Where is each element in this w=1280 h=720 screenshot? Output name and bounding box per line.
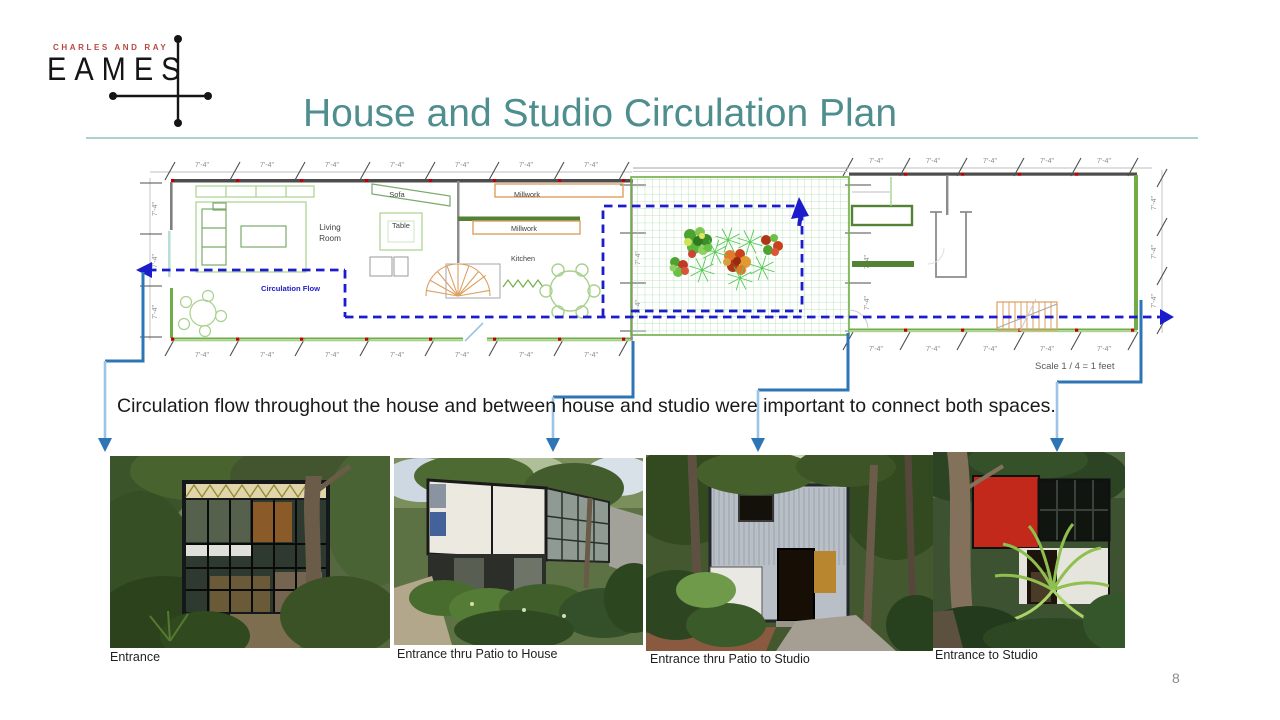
dimension-tick xyxy=(489,162,499,180)
dimension-tick xyxy=(230,162,240,180)
dimension-label: 7'-4" xyxy=(1097,346,1111,353)
dimension-label: 7'-4" xyxy=(1040,346,1054,353)
dimension-label: 7'-4" xyxy=(983,346,997,353)
dimension-label: 7'-4" xyxy=(195,162,209,169)
dimension-tick xyxy=(165,162,175,180)
living-room-label: Living xyxy=(319,223,341,232)
photo-entrance-thru-patio-to-house-image xyxy=(394,458,643,645)
door-swing xyxy=(849,310,868,329)
dimension-label: 7'-4" xyxy=(864,296,871,310)
studio-stair xyxy=(997,299,1057,331)
eames-cross-icon xyxy=(100,30,230,135)
cabinet-outline xyxy=(370,257,392,276)
dimension-label: 7'-4" xyxy=(325,162,339,169)
dimension-label: 7'-4" xyxy=(1097,158,1111,165)
living-room-label: Room xyxy=(319,234,341,243)
page-title: House and Studio Circulation Plan xyxy=(303,92,897,136)
dimension-tick xyxy=(554,162,564,180)
dimension-label: 7'-4" xyxy=(926,158,940,165)
dimension-label: 7'-4" xyxy=(152,202,159,216)
dimension-label: 7'-4" xyxy=(260,162,274,169)
dimension-tick xyxy=(957,332,967,350)
dimension-tick xyxy=(360,162,370,180)
dimension-tick xyxy=(425,162,435,180)
photo-caption-entrance: Entrance xyxy=(110,650,160,664)
studio-table xyxy=(930,212,972,277)
dimension-label: 7'-4" xyxy=(260,352,274,359)
studio-counter xyxy=(852,206,912,225)
dimension-tick xyxy=(619,162,629,180)
studio-counter xyxy=(852,261,914,267)
photo-entrance-thru-patio-to-studio-image xyxy=(646,455,933,651)
living-room-furniture xyxy=(179,186,315,337)
dimension-tick xyxy=(1014,332,1024,350)
photo-entrance-to-studio-image xyxy=(933,452,1125,648)
photo-entrance-thru-patio-to-house xyxy=(394,458,643,650)
cabinet-outline xyxy=(394,257,408,276)
dimension-label: 7'-4" xyxy=(1151,245,1158,259)
dimension-label: 7'-4" xyxy=(152,254,159,268)
dining-table xyxy=(540,264,600,318)
dimension-tick xyxy=(295,162,305,180)
dimension-label: 7'-4" xyxy=(390,352,404,359)
dimension-label: 7'-4" xyxy=(584,162,598,169)
kitchen-label: Kitchen xyxy=(511,254,535,263)
dimension-label: 7'-4" xyxy=(519,352,533,359)
page-number: 8 xyxy=(1172,670,1180,686)
photo-caption-entrance-to-studio: Entrance to Studio xyxy=(935,648,1038,662)
body-text: Circulation flow throughout the house an… xyxy=(117,395,1177,418)
sofa-label: Sofa xyxy=(389,190,405,199)
title-divider xyxy=(86,137,1198,139)
dimension-label: 7'-4" xyxy=(325,352,339,359)
dimension-tick xyxy=(1071,332,1081,350)
table-label: Table xyxy=(392,221,410,230)
photo-entrance-thru-patio-to-studio xyxy=(646,455,933,656)
dimension-label: 7'-4" xyxy=(195,352,209,359)
dimension-label: 7'-4" xyxy=(983,158,997,165)
dimension-label: 7'-4" xyxy=(152,305,159,319)
table-outline xyxy=(380,213,422,250)
dimension-label: 7'-4" xyxy=(869,346,883,353)
studio-plan xyxy=(849,173,1138,333)
circulation-flow-label: Circulation Flow xyxy=(261,284,320,293)
connector-arrow-icon xyxy=(751,438,765,452)
millwork-lower-label: Millwork xyxy=(511,224,537,233)
slide: CHARLES AND RAY EAMES House and Studio C… xyxy=(0,0,1280,720)
flow-arrow-right xyxy=(1160,309,1174,325)
zigzag-symbol xyxy=(503,280,543,287)
sofa-outline xyxy=(372,184,450,206)
photo-entrance-image xyxy=(110,456,390,648)
dimension-label: 7'-4" xyxy=(1040,158,1054,165)
photo-entrance-to-studio xyxy=(933,452,1125,653)
spiral-stair xyxy=(426,264,500,298)
dimension-label: 7'-4" xyxy=(584,352,598,359)
connector-arrow-icon xyxy=(98,438,112,452)
connector-arrow-icon xyxy=(546,438,560,452)
connector-arrow-icon xyxy=(1050,438,1064,452)
dimension-label: 7'-4" xyxy=(455,162,469,169)
photo-caption-entrance-thru-patio-to-studio: Entrance thru Patio to Studio xyxy=(650,652,810,666)
dimension-tick xyxy=(1128,332,1138,350)
photo-caption-entrance-thru-patio-to-house: Entrance thru Patio to House xyxy=(397,647,558,661)
millwork-upper-label: Millwork xyxy=(514,190,540,199)
dimension-label: 7'-4" xyxy=(390,162,404,169)
dimension-tick xyxy=(900,332,910,350)
dimension-label: 7'-4" xyxy=(519,162,533,169)
flow-arrow-left xyxy=(136,262,152,278)
dimension-label: 7'-4" xyxy=(1151,196,1158,210)
dimension-label: 7'-4" xyxy=(869,158,883,165)
dimension-label: 7'-4" xyxy=(926,346,940,353)
dimension-label: 7'-4" xyxy=(455,352,469,359)
dimension-label: 7'-4" xyxy=(1151,294,1158,308)
scale-note: Scale 1 / 4 = 1 feet xyxy=(1035,361,1115,372)
photo-entrance xyxy=(110,456,390,653)
circulation-floor-plan: 7'-4"7'-4"7'-4"7'-4"7'-4"7'-4"7'-4"7'-4"… xyxy=(90,145,1200,380)
